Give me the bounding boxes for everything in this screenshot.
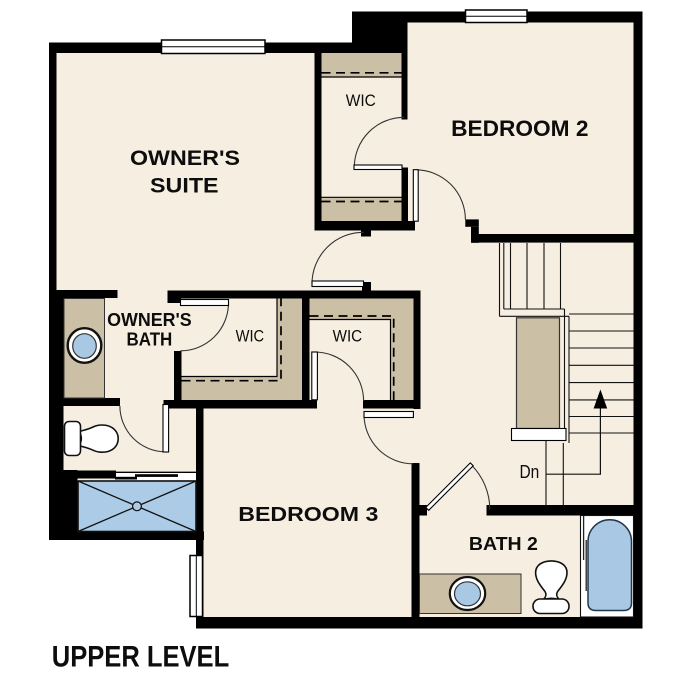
svg-text:Dn: Dn [520,462,540,482]
svg-text:OWNER'S: OWNER'S [107,309,192,330]
svg-text:WIC: WIC [346,92,376,110]
svg-text:BATH: BATH [127,328,173,349]
svg-text:WIC: WIC [333,328,363,346]
svg-text:BEDROOM 3: BEDROOM 3 [238,503,378,526]
svg-text:BATH 2: BATH 2 [469,534,538,554]
svg-text:OWNER'S: OWNER'S [130,147,240,170]
svg-text:BEDROOM 2: BEDROOM 2 [451,116,588,141]
svg-text:SUITE: SUITE [150,175,219,198]
svg-text:WIC: WIC [236,327,265,345]
svg-text:UPPER LEVEL: UPPER LEVEL [52,641,229,674]
